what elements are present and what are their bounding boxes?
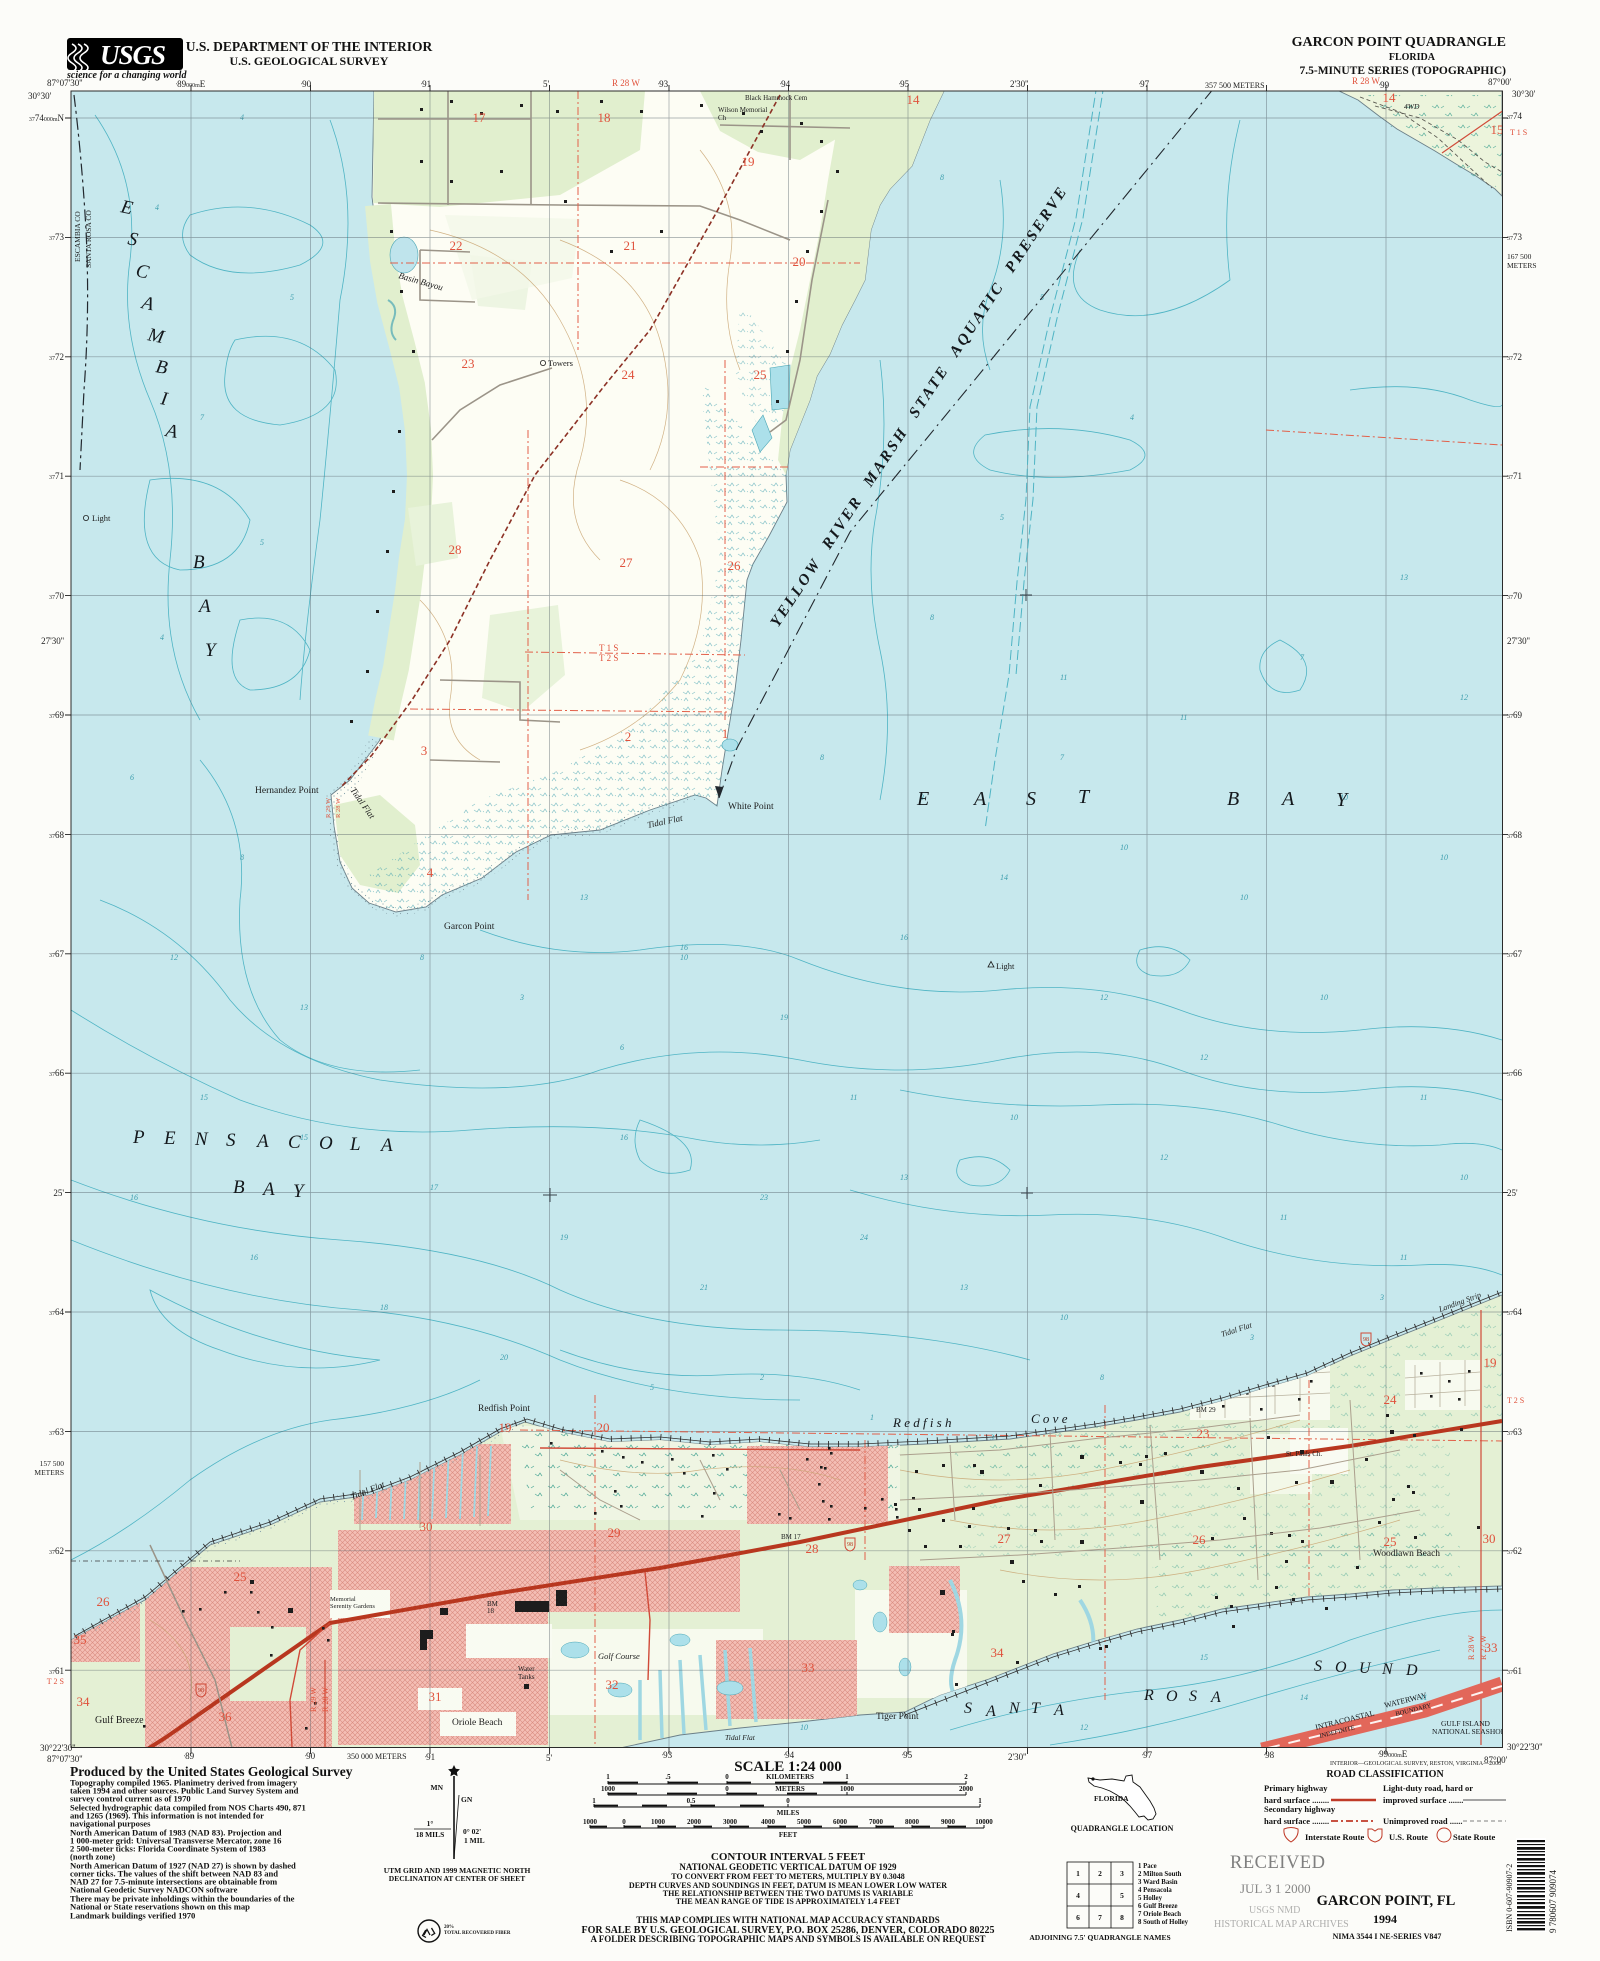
svg-text:U.S. DEPARTMENT OF THE INTERIO: U.S. DEPARTMENT OF THE INTERIOR (186, 39, 433, 54)
svg-text:28: 28 (449, 542, 462, 557)
svg-text:16: 16 (680, 943, 688, 952)
svg-text:A FOLDER DESCRIBING TOPOGRAPHI: A FOLDER DESCRIBING TOPOGRAPHIC MAPS AND… (591, 1934, 986, 1944)
svg-text:3000: 3000 (723, 1818, 738, 1826)
svg-text:Secondary highway: Secondary highway (1264, 1804, 1336, 1814)
svg-text:1: 1 (592, 1797, 596, 1805)
svg-text:9 780607 909074: 9 780607 909074 (1548, 1870, 1558, 1934)
svg-text:27: 27 (620, 555, 634, 570)
svg-text:2: 2 (760, 1373, 764, 1382)
svg-text:16: 16 (620, 1133, 628, 1142)
svg-text:20: 20 (500, 1353, 508, 1362)
svg-text:'95: '95 (902, 1750, 913, 1760)
svg-text:0° 02': 0° 02' (463, 1827, 481, 1836)
svg-text:8: 8 (1120, 1913, 1124, 1922)
svg-text:FEET: FEET (779, 1831, 798, 1839)
svg-text:O: O (1335, 1659, 1347, 1676)
svg-text:Wilson Memorial: Wilson Memorial (718, 106, 767, 114)
svg-text:R: R (1143, 1687, 1154, 1704)
svg-text:20%: 20% (444, 1925, 454, 1930)
svg-text:34: 34 (77, 1694, 91, 1709)
svg-text:5: 5 (290, 293, 294, 302)
svg-text:6: 6 (130, 773, 134, 782)
svg-text:25: 25 (1384, 1534, 1397, 1549)
svg-text:N: N (1381, 1661, 1394, 1678)
svg-text:hard surface ........: hard surface ........ (1264, 1816, 1329, 1826)
svg-text:4: 4 (160, 633, 164, 642)
svg-text:29: 29 (608, 1525, 621, 1540)
svg-text:1000: 1000 (601, 1785, 616, 1793)
svg-text:12: 12 (1080, 1723, 1088, 1732)
svg-text:8: 8 (240, 853, 244, 862)
svg-text:Hernandez Point: Hernandez Point (255, 786, 319, 796)
svg-text:7000: 7000 (869, 1818, 884, 1826)
svg-text:36: 36 (219, 1709, 233, 1724)
svg-text:C: C (288, 1132, 301, 1153)
svg-text:87°07'30'': 87°07'30'' (47, 78, 83, 88)
svg-text:30°30': 30°30' (1512, 89, 1536, 99)
svg-text:White Point: White Point (728, 802, 774, 812)
svg-text:8000: 8000 (905, 1818, 920, 1826)
svg-text:T 1 S: T 1 S (1510, 128, 1527, 137)
svg-text:GARCON POINT, FL: GARCON POINT, FL (1317, 1893, 1456, 1909)
svg-text:FLORIDA: FLORIDA (1389, 52, 1436, 63)
svg-text:5: 5 (1120, 1891, 1124, 1900)
svg-text:R 28 W: R 28 W (612, 78, 640, 88)
svg-text:19: 19 (780, 1013, 788, 1022)
svg-text:GARCON POINT QUADRANGLE: GARCON POINT QUADRANGLE (1292, 35, 1506, 50)
svg-text:St. Pauls Ch.: St. Pauls Ch. (1286, 1450, 1322, 1458)
svg-text:15: 15 (1491, 122, 1504, 137)
svg-text:30: 30 (1483, 1531, 1496, 1546)
svg-text:11: 11 (1400, 1253, 1407, 1262)
svg-text:'93: '93 (658, 79, 669, 89)
svg-text:R 28 W: R 28 W (321, 1687, 330, 1712)
svg-text:Light: Light (92, 513, 111, 523)
svg-text:1 Pace: 1 Pace (1138, 1863, 1157, 1870)
svg-text:R 29 W: R 29 W (325, 797, 332, 818)
svg-text:NATIONAL SEASHORE: NATIONAL SEASHORE (1432, 1727, 1511, 1736)
svg-text:R e d f i s h: R e d f i s h (892, 1415, 952, 1430)
svg-text:23: 23 (462, 356, 475, 371)
svg-text:25': 25' (53, 1188, 64, 1198)
svg-text:MILES: MILES (777, 1809, 800, 1817)
svg-text:U.S. Route: U.S. Route (1389, 1832, 1428, 1842)
svg-text:98: 98 (1363, 1337, 1369, 1343)
svg-text:8: 8 (930, 613, 934, 622)
svg-text:N: N (194, 1129, 209, 1150)
svg-text:5: 5 (260, 538, 264, 547)
svg-text:18 MILS: 18 MILS (416, 1830, 445, 1839)
svg-text:11: 11 (850, 1093, 857, 1102)
svg-text:A: A (972, 788, 987, 810)
svg-text:1000: 1000 (651, 1818, 666, 1826)
svg-text:31: 31 (429, 1689, 442, 1704)
svg-text:Memorial: Memorial (330, 1596, 356, 1603)
svg-text:B: B (193, 552, 205, 573)
svg-text:ROAD CLASSIFICATION: ROAD CLASSIFICATION (1326, 1769, 1444, 1780)
svg-text:N: N (1008, 1700, 1021, 1717)
svg-text:4: 4 (155, 203, 159, 212)
svg-text:4: 4 (1076, 1891, 1080, 1900)
svg-text:13: 13 (900, 1173, 908, 1182)
svg-text:8: 8 (940, 173, 944, 182)
svg-text:A: A (261, 1179, 275, 1200)
svg-text:20: 20 (793, 254, 806, 269)
svg-text:87°00': 87°00' (1484, 1755, 1508, 1765)
svg-text:16: 16 (250, 1253, 258, 1262)
svg-text:24: 24 (1384, 1392, 1398, 1407)
svg-text:30°22'30'': 30°22'30'' (1507, 1742, 1543, 1752)
svg-text:5: 5 (650, 1383, 654, 1392)
svg-text:BM 29: BM 29 (1196, 1406, 1216, 1414)
svg-text:U: U (1359, 1660, 1372, 1677)
svg-text:Redfish Point: Redfish Point (478, 1403, 530, 1414)
svg-text:15: 15 (1200, 1653, 1208, 1662)
svg-text:QUADRANGLE LOCATION: QUADRANGLE LOCATION (1071, 1824, 1174, 1833)
svg-text:14: 14 (1000, 873, 1008, 882)
svg-text:10: 10 (1460, 1173, 1468, 1182)
svg-text:10: 10 (1440, 853, 1448, 862)
svg-text:O: O (1166, 1688, 1178, 1705)
svg-text:13: 13 (960, 1283, 968, 1292)
svg-text:6000: 6000 (833, 1818, 848, 1826)
svg-text:0.5: 0.5 (687, 1797, 696, 1805)
svg-text:14: 14 (1300, 1693, 1308, 1702)
svg-text:ESCAMBIA CO: ESCAMBIA CO (73, 211, 82, 262)
svg-text:16: 16 (130, 1193, 138, 1202)
svg-text:Black Hammock Cem: Black Hammock Cem (745, 94, 808, 102)
svg-text:22: 22 (450, 238, 463, 253)
svg-text:2'30'': 2'30'' (1010, 79, 1029, 89)
svg-text:BM 17: BM 17 (781, 1533, 801, 1541)
svg-text:'98: '98 (1264, 1750, 1275, 1760)
svg-text:KILOMETERS: KILOMETERS (766, 1773, 814, 1781)
svg-text:19: 19 (1484, 1355, 1497, 1370)
svg-text:Interstate Route: Interstate Route (1305, 1832, 1364, 1842)
svg-text:10: 10 (1060, 1313, 1068, 1322)
svg-text:10000: 10000 (975, 1818, 993, 1826)
svg-text:R 28 W: R 28 W (1467, 1635, 1476, 1660)
svg-text:87°07'30'': 87°07'30'' (47, 1754, 83, 1764)
svg-text:1: 1 (722, 726, 729, 741)
svg-text:15: 15 (300, 1133, 308, 1142)
svg-text:10: 10 (1120, 843, 1128, 852)
svg-text:10: 10 (680, 953, 688, 962)
svg-text:METERS: METERS (34, 1468, 64, 1477)
svg-text:A: A (1053, 1702, 1064, 1719)
svg-text:25': 25' (1507, 1188, 1518, 1198)
svg-text:1: 1 (870, 1413, 874, 1422)
svg-text:19: 19 (560, 1233, 568, 1242)
svg-text:'91: '91 (425, 1752, 435, 1762)
svg-text:7: 7 (1098, 1913, 1102, 1922)
svg-text:NATIONAL GEODETIC VERTICAL DAT: NATIONAL GEODETIC VERTICAL DATUM OF 1929 (679, 1862, 897, 1872)
svg-text:1°: 1° (427, 1819, 434, 1828)
svg-text:0: 0 (725, 1773, 729, 1781)
svg-text:B: B (233, 1177, 245, 1198)
svg-text:E: E (163, 1128, 176, 1149)
svg-text:'90: '90 (305, 1751, 316, 1761)
svg-text:12: 12 (1200, 1053, 1208, 1062)
svg-text:12: 12 (1460, 693, 1468, 702)
svg-text:R 29 W: R 29 W (309, 1687, 318, 1712)
svg-text:1 MIL: 1 MIL (464, 1836, 485, 1845)
svg-text:8 South of Holley: 8 South of Holley (1138, 1919, 1189, 1926)
svg-text:13: 13 (1400, 573, 1408, 582)
svg-text:C o v e: C o v e (1031, 1411, 1068, 1426)
svg-text:25: 25 (234, 1569, 247, 1584)
svg-text:METERS: METERS (1507, 261, 1537, 270)
svg-text:24: 24 (860, 1233, 868, 1242)
svg-text:10: 10 (800, 1723, 808, 1732)
svg-text:6: 6 (620, 1043, 624, 1052)
svg-text:Landmark buildings verified 19: Landmark buildings verified 1970 (70, 1911, 195, 1921)
svg-text:5 Holley: 5 Holley (1138, 1895, 1163, 1902)
svg-text:1000: 1000 (583, 1818, 598, 1826)
svg-text:METERS: METERS (775, 1785, 805, 1793)
svg-text:S: S (226, 1130, 236, 1151)
svg-text:1: 1 (845, 1773, 849, 1781)
svg-text:19: 19 (742, 154, 755, 169)
svg-text:L: L (349, 1134, 361, 1155)
svg-text:4: 4 (427, 865, 434, 880)
svg-text:'95: '95 (899, 79, 910, 89)
svg-text:A: A (985, 1703, 996, 1720)
svg-text:28: 28 (806, 1541, 819, 1556)
svg-text:'94: '94 (780, 79, 791, 89)
svg-text:10: 10 (1010, 1113, 1018, 1122)
svg-text:13: 13 (300, 1003, 308, 1012)
svg-text:12: 12 (170, 953, 178, 962)
svg-text:3: 3 (519, 993, 524, 1002)
svg-text:9000: 9000 (941, 1818, 956, 1826)
svg-text:A: A (255, 1131, 269, 1152)
svg-text:Y: Y (1336, 789, 1349, 811)
svg-text:3: 3 (421, 743, 428, 758)
svg-text:4WD: 4WD (1404, 102, 1420, 111)
svg-text:T 1 S: T 1 S (599, 643, 618, 653)
svg-text:Woodlawn Beach: Woodlawn Beach (1373, 1549, 1440, 1559)
svg-text:35: 35 (74, 1632, 87, 1647)
svg-text:E: E (916, 788, 929, 810)
svg-text:7 Oriole Beach: 7 Oriole Beach (1138, 1911, 1181, 1918)
svg-text:2: 2 (964, 1773, 968, 1781)
svg-text:23: 23 (760, 1193, 768, 1202)
svg-text:1994: 1994 (1373, 1912, 1397, 1926)
svg-text:11: 11 (1280, 1213, 1287, 1222)
svg-text:34: 34 (991, 1645, 1005, 1660)
svg-text:157 500: 157 500 (40, 1459, 65, 1468)
svg-text:NIMA 3544 I NE-SERIES V847: NIMA 3544 I NE-SERIES V847 (1333, 1932, 1442, 1941)
svg-text:T: T (1078, 786, 1091, 808)
svg-text:3: 3 (1379, 1293, 1384, 1302)
svg-text:16: 16 (900, 933, 908, 942)
svg-text:THIS MAP COMPLIES WITH NATIONA: THIS MAP COMPLIES WITH NATIONAL MAP ACCU… (636, 1915, 939, 1925)
svg-text:1000: 1000 (840, 1785, 855, 1793)
svg-text:S: S (1314, 1658, 1322, 1675)
svg-text:12: 12 (1100, 993, 1108, 1002)
svg-text:0: 0 (622, 1818, 626, 1826)
svg-text:D: D (1405, 1662, 1418, 1679)
svg-text:science for a changing world: science for a changing world (66, 70, 187, 81)
svg-text:Gulf Breeze: Gulf Breeze (95, 1715, 144, 1726)
svg-text:5: 5 (1000, 513, 1004, 522)
svg-text:17: 17 (430, 1183, 439, 1192)
svg-text:S: S (1189, 1688, 1197, 1705)
svg-text:'99: '99 (1379, 80, 1390, 90)
svg-text:A: A (197, 596, 211, 617)
svg-text:30°22'30'': 30°22'30'' (40, 1743, 76, 1753)
svg-text:Ch: Ch (718, 114, 727, 122)
svg-text:24: 24 (622, 367, 636, 382)
svg-text:11: 11 (1420, 1093, 1427, 1102)
svg-text:'90: '90 (301, 79, 312, 89)
svg-text:TO CONVERT FROM FEET TO METERS: TO CONVERT FROM FEET TO METERS, MULTIPLY… (671, 1872, 904, 1881)
svg-text:3: 3 (1249, 1333, 1254, 1342)
svg-text:14: 14 (907, 92, 921, 107)
svg-text:25: 25 (754, 367, 767, 382)
svg-text:18: 18 (487, 1607, 495, 1615)
svg-text:Light-duty road, hard or: Light-duty road, hard or (1383, 1783, 1473, 1793)
svg-text:Tidal Flat: Tidal Flat (725, 1733, 756, 1742)
svg-text:26: 26 (728, 558, 742, 573)
svg-text:26: 26 (1193, 1532, 1207, 1547)
svg-text:USGS NMD: USGS NMD (1249, 1905, 1300, 1916)
svg-text:A: A (379, 1135, 393, 1156)
svg-text:State Route: State Route (1453, 1832, 1495, 1842)
svg-text:GN: GN (461, 1795, 473, 1804)
svg-text:30: 30 (420, 1519, 433, 1534)
svg-text:357 500 METERS: 357 500 METERS (1205, 81, 1265, 90)
svg-text:A: A (1280, 788, 1295, 810)
svg-text:2000: 2000 (959, 1785, 974, 1793)
svg-text:87°00': 87°00' (1488, 77, 1512, 87)
svg-text:Tiger Point: Tiger Point (876, 1712, 919, 1722)
svg-text:10: 10 (1320, 993, 1328, 1002)
svg-text:.5: .5 (665, 1773, 671, 1781)
svg-text:30°30': 30°30' (28, 91, 52, 101)
svg-text:2 Milton South: 2 Milton South (1138, 1871, 1182, 1878)
svg-text:11: 11 (1180, 713, 1187, 722)
svg-text:15: 15 (200, 1093, 208, 1102)
svg-text:THE MEAN RANGE OF TIDE IS APPR: THE MEAN RANGE OF TIDE IS APPROXIMATELY … (676, 1897, 901, 1906)
svg-text:T 2 S: T 2 S (599, 653, 618, 663)
svg-text:11: 11 (1060, 673, 1067, 682)
svg-text:DECLINATION AT CENTER OF SHEET: DECLINATION AT CENTER OF SHEET (389, 1874, 525, 1883)
svg-text:2: 2 (625, 729, 632, 744)
svg-text:2000: 2000 (687, 1818, 702, 1826)
svg-text:R 28 W: R 28 W (335, 797, 342, 818)
svg-text:ISBN 0-607-90907-2: ISBN 0-607-90907-2 (1505, 1864, 1514, 1932)
svg-text:FLORIDA: FLORIDA (1094, 1794, 1129, 1803)
svg-text:O: O (319, 1133, 333, 1154)
svg-text:Tanks: Tanks (518, 1673, 535, 1681)
svg-text:'93: '93 (662, 1750, 673, 1760)
svg-text:improved surface .......: improved surface ....... (1383, 1795, 1463, 1805)
svg-text:4: 4 (1130, 413, 1134, 422)
svg-text:ADJOINING 7.5' QUADRANGLE NAME: ADJOINING 7.5' QUADRANGLE NAMES (1029, 1933, 1170, 1942)
svg-text:5': 5' (543, 79, 550, 89)
svg-text:2: 2 (1098, 1869, 1102, 1878)
svg-text:Water: Water (518, 1665, 535, 1673)
svg-text:167 500: 167 500 (1507, 252, 1532, 261)
svg-text:JUL 3 1 2000: JUL 3 1 2000 (1240, 1881, 1311, 1896)
svg-text:98: 98 (847, 1542, 853, 1548)
svg-text:S: S (964, 1700, 972, 1717)
svg-text:Primary highway: Primary highway (1264, 1783, 1328, 1793)
svg-text:19: 19 (499, 1420, 512, 1435)
svg-text:Towers: Towers (548, 358, 573, 368)
svg-text:3 Ward Basin: 3 Ward Basin (1138, 1879, 1178, 1886)
svg-text:1: 1 (606, 1773, 610, 1781)
svg-text:8: 8 (820, 753, 824, 762)
svg-text:TOTAL RECOVERED FIBER: TOTAL RECOVERED FIBER (444, 1931, 511, 1936)
svg-text:32: 32 (606, 1677, 619, 1692)
svg-text:0: 0 (786, 1797, 790, 1805)
svg-text:R 28 W: R 28 W (1352, 76, 1380, 86)
svg-text:20: 20 (597, 1420, 610, 1435)
svg-text:27: 27 (998, 1531, 1012, 1546)
svg-text:27'30'': 27'30'' (1507, 636, 1530, 646)
svg-text:B: B (1227, 788, 1239, 810)
svg-text:10: 10 (1240, 893, 1248, 902)
svg-text:4000: 4000 (761, 1818, 776, 1826)
svg-text:Serenity Gardens: Serenity Gardens (330, 1603, 375, 1610)
svg-text:MN: MN (431, 1783, 444, 1792)
svg-text:4 Pensacola: 4 Pensacola (1138, 1887, 1172, 1894)
svg-text:21: 21 (624, 238, 637, 253)
svg-text:98: 98 (198, 1688, 204, 1694)
svg-text:12: 12 (1160, 1153, 1168, 1162)
svg-text:INTERIOR—GEOLOGICAL SURVEY, RE: INTERIOR—GEOLOGICAL SURVEY, RESTON, VIRG… (1330, 1761, 1501, 1767)
svg-text:26: 26 (97, 1594, 111, 1609)
svg-text:3: 3 (1120, 1869, 1124, 1878)
svg-text:U.S. GEOLOGICAL SURVEY: U.S. GEOLOGICAL SURVEY (230, 54, 389, 68)
svg-text:5': 5' (546, 1753, 553, 1763)
svg-text:A: A (1210, 1689, 1221, 1706)
svg-text:Unimproved road ......: Unimproved road ...... (1383, 1816, 1463, 1826)
svg-text:T 2 S: T 2 S (47, 1677, 64, 1686)
svg-text:0: 0 (725, 1785, 729, 1793)
svg-text:'97: '97 (1139, 79, 1150, 89)
svg-text:17: 17 (473, 110, 487, 125)
svg-text:Garcon Point: Garcon Point (444, 922, 495, 932)
svg-text:RECEIVED: RECEIVED (1230, 1853, 1325, 1873)
svg-text:6 Gulf Breeze: 6 Gulf Breeze (1138, 1903, 1178, 1910)
svg-text:Light: Light (996, 961, 1015, 971)
svg-text:18: 18 (380, 1303, 388, 1312)
svg-text:27'30'': 27'30'' (41, 636, 64, 646)
svg-text:18: 18 (598, 110, 611, 125)
svg-text:13: 13 (580, 893, 588, 902)
svg-text:Oriole Beach: Oriole Beach (452, 1718, 503, 1728)
svg-text:S: S (1026, 788, 1036, 810)
svg-text:4: 4 (240, 113, 244, 122)
svg-text:P: P (132, 1127, 145, 1148)
svg-text:5000: 5000 (797, 1818, 812, 1826)
svg-text:33: 33 (802, 1660, 815, 1675)
svg-text:21: 21 (700, 1283, 708, 1292)
svg-text:T: T (1031, 1700, 1041, 1717)
svg-text:1: 1 (1076, 1869, 1080, 1878)
svg-text:23: 23 (1197, 1426, 1210, 1441)
svg-text:'97: '97 (1142, 1750, 1153, 1760)
svg-text:T 2 S: T 2 S (1507, 1396, 1524, 1405)
svg-text:Golf Course: Golf Course (598, 1651, 640, 1661)
svg-text:1: 1 (978, 1797, 982, 1805)
svg-text:'91: '91 (421, 79, 431, 89)
svg-text:6: 6 (1076, 1913, 1080, 1922)
